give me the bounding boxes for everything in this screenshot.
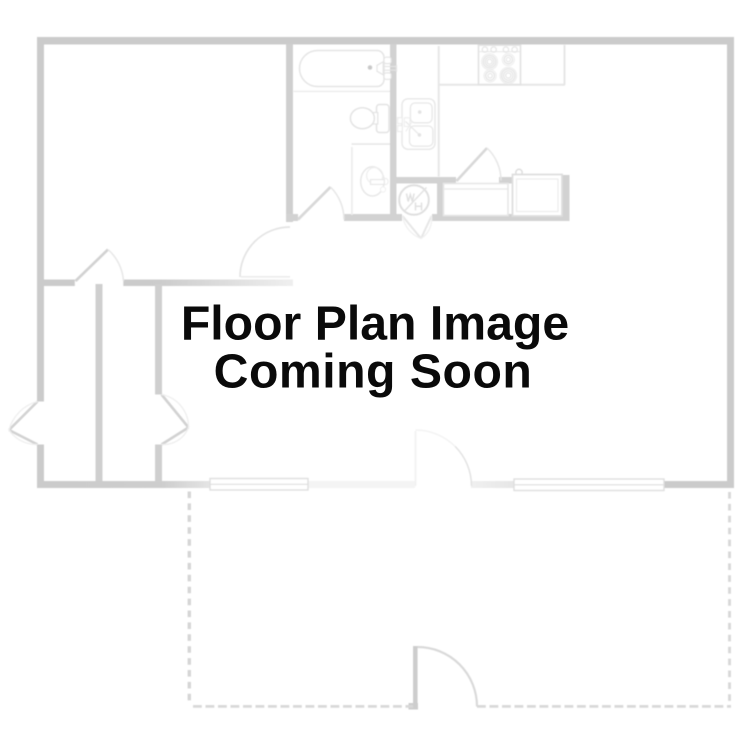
svg-text:Floor Plan Image: Floor Plan Image <box>181 297 569 351</box>
svg-text:Coming Soon: Coming Soon <box>214 345 533 399</box>
